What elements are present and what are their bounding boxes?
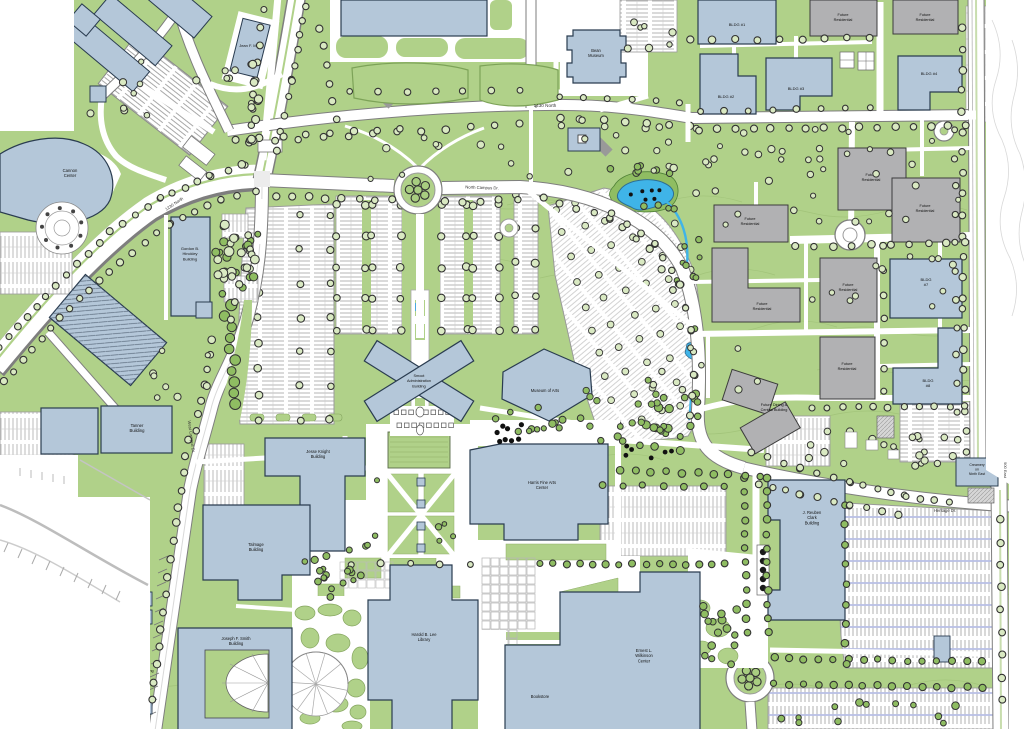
svg-text:Future: Future: [920, 204, 931, 208]
svg-text:1430 North: 1430 North: [534, 103, 557, 108]
svg-text:Building: Building: [412, 384, 426, 388]
svg-text:Future: Future: [838, 13, 849, 17]
svg-text:Future: Future: [745, 217, 756, 221]
svg-text:Museum of Arts: Museum of Arts: [531, 388, 559, 393]
svg-text:Residential: Residential: [839, 288, 858, 292]
svg-text:Library: Library: [418, 637, 431, 642]
svg-text:Building: Building: [229, 641, 244, 646]
svg-text:Residential: Residential: [753, 307, 772, 311]
svg-text:Administration: Administration: [407, 379, 431, 383]
svg-text:Museum: Museum: [588, 53, 604, 58]
svg-text:Building: Building: [130, 428, 146, 433]
svg-text:Building: Building: [249, 547, 264, 552]
svg-text:Residential: Residential: [834, 18, 853, 22]
svg-text:Ninth East: Ninth East: [969, 472, 985, 476]
svg-text:Heritage Dr.: Heritage Dr.: [934, 508, 956, 513]
svg-text:Creamery: Creamery: [969, 463, 985, 467]
svg-text:Future: Future: [842, 362, 853, 366]
svg-text:Center: Center: [64, 173, 77, 178]
svg-text:BLDG #1: BLDG #1: [729, 22, 746, 27]
svg-text:Residential: Residential: [862, 178, 881, 182]
svg-text:Residential: Residential: [916, 18, 935, 22]
svg-text:Residential: Residential: [916, 209, 935, 213]
svg-text:Central Building: Central Building: [761, 408, 788, 412]
svg-text:Smoot: Smoot: [414, 374, 426, 378]
svg-text:900 East: 900 East: [1003, 462, 1008, 479]
svg-text:Future: Future: [757, 302, 768, 306]
svg-text:Center: Center: [638, 658, 651, 663]
svg-text:Future: Future: [920, 13, 931, 17]
svg-text:Bookstore: Bookstore: [531, 694, 550, 699]
svg-text:Future Dining &: Future Dining &: [761, 403, 788, 407]
svg-text:#8: #8: [926, 383, 931, 388]
svg-text:BLDG #2: BLDG #2: [718, 94, 735, 99]
svg-text:BLDG #3: BLDG #3: [788, 86, 805, 91]
svg-text:Future: Future: [843, 283, 854, 287]
svg-text:Building: Building: [311, 454, 326, 459]
svg-text:Residential: Residential: [838, 367, 857, 371]
svg-text:BLDG #4: BLDG #4: [921, 71, 938, 76]
svg-text:Center: Center: [536, 485, 549, 490]
svg-text:Building: Building: [805, 520, 820, 525]
svg-text:on: on: [975, 467, 979, 471]
svg-text:Residential: Residential: [741, 222, 760, 226]
svg-text:Building: Building: [183, 256, 197, 261]
svg-text:#7: #7: [924, 282, 929, 287]
